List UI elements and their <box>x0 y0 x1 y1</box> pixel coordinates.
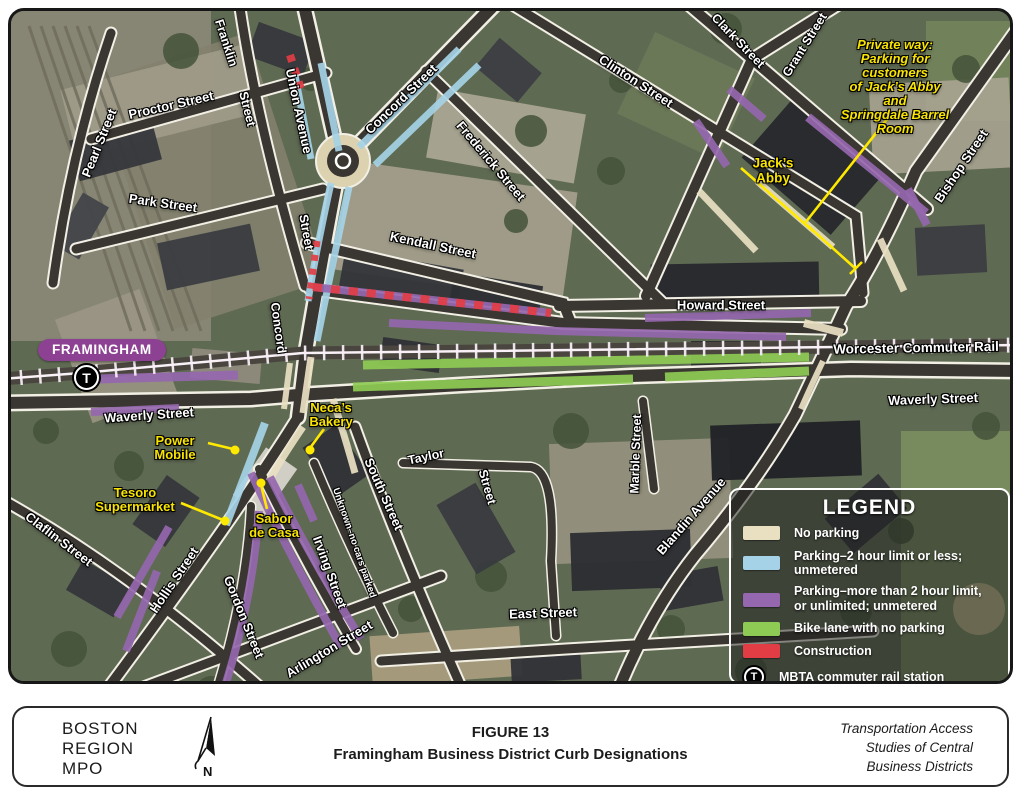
mbta-station-icon: T <box>74 365 99 390</box>
t-logo-icon: T <box>744 667 764 684</box>
legend-item-station: T MBTA commuter rail station <box>743 667 996 684</box>
legend-item-parking-2hr: Parking–2 hour limit or less; unmetered <box>743 549 996 578</box>
legend-item-no-parking: No parking <box>743 526 996 540</box>
poi-label-tesoro: Tesoro Supermarket <box>95 486 174 514</box>
svg-text:N: N <box>203 764 212 779</box>
figure-page: Pearl StreetProctor StreetPark StreetFra… <box>0 0 1021 800</box>
construction-swatch <box>743 644 780 658</box>
figure-caption: FIGURE 13 Framingham Business District C… <box>333 722 687 766</box>
street-label-east: East Street <box>509 605 577 620</box>
legend-box: LEGEND No parking Parking–2 hour limit o… <box>729 488 1010 684</box>
street-label-howard: Howard Street <box>677 299 765 312</box>
figure-label: FIGURE 13 <box>333 722 687 744</box>
poi-label-sabor: Sabor de Casa <box>249 512 299 540</box>
poi-label-private-way: Private way: Parking for customers of Ja… <box>838 38 953 136</box>
poi-label-power: Power Mobile <box>154 434 195 462</box>
org-name: BOSTON REGION MPO <box>62 719 138 779</box>
legend-item-construction: Construction <box>743 644 996 658</box>
map-canvas: Pearl StreetProctor StreetPark StreetFra… <box>8 8 1013 684</box>
legend-title: LEGEND <box>743 496 996 520</box>
north-arrow-icon: N <box>192 714 226 782</box>
figure-title: Framingham Business District Curb Design… <box>333 744 687 766</box>
legend-item-parking-long: Parking–more than 2 hour limit, or unlim… <box>743 586 996 613</box>
street-label-worcester: Worcester Commuter Rail <box>833 340 999 356</box>
poi-label-jacks-abby: Jack’s Abby <box>753 156 794 185</box>
title-footer: BOSTON REGION MPO N FIGURE 13 Framingham… <box>12 706 1009 787</box>
legend-item-bike-lane: Bike lane with no parking <box>743 621 996 635</box>
poi-label-necas: Neca’s Bakery <box>309 401 352 429</box>
parking-long-swatch <box>743 593 780 607</box>
framingham-badge: FRAMINGHAM <box>38 339 166 361</box>
street-label-waverly-e: Waverly Street <box>888 391 978 407</box>
bike-lane-swatch <box>743 622 780 636</box>
parking-2hr-swatch <box>743 556 780 570</box>
street-label-marble: Marble Street <box>628 414 643 494</box>
no-parking-swatch <box>743 526 780 540</box>
program-name: Transportation Access Studies of Central… <box>840 720 973 777</box>
